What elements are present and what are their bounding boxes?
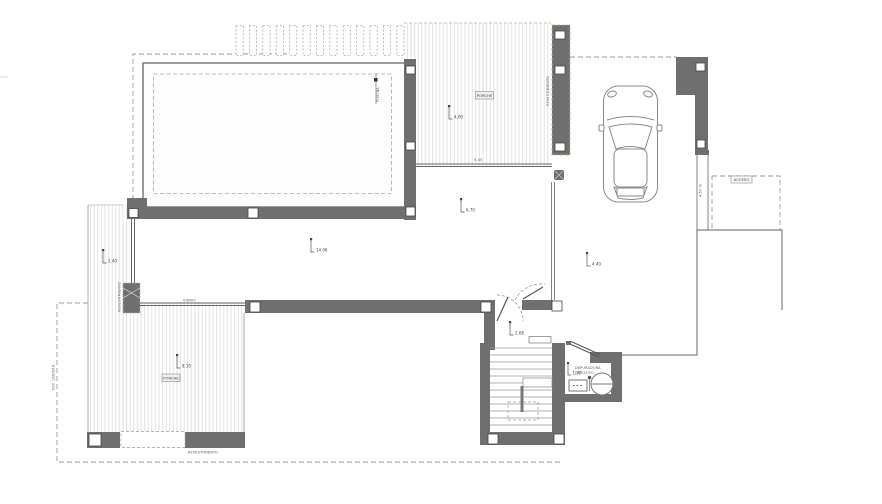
- utility-room: [569, 373, 613, 395]
- floor-plan-canvas: PORCHE PORCHE ACCESO 4.00 6.70 14.06 1.4…: [0, 0, 882, 504]
- floor-plan-drawing: PORCHE PORCHE ACCESO 4.00 6.70 14.06 1.4…: [0, 0, 882, 504]
- stairs: [490, 337, 552, 426]
- wall-utility-bottom: [563, 394, 622, 402]
- marker-porch-top: 4.00: [454, 115, 463, 120]
- wall-stairs-left: [480, 343, 490, 445]
- pergola-slats: [236, 26, 404, 56]
- label-side-dim: 4.50 m: [699, 183, 703, 197]
- label-access: ACCESO: [734, 177, 750, 182]
- marker-porch-bottom: 8.10: [182, 364, 191, 369]
- label-cladding-left: REVESTIMIENTO: [118, 282, 122, 312]
- pillar-terrace-column: [123, 283, 140, 313]
- wall-main-bottom: [245, 300, 495, 313]
- marker-entry: 2.68: [515, 331, 524, 336]
- wall-stairs-right: [552, 343, 565, 433]
- label-cladding-right: REVESTIMIENTO: [546, 76, 550, 106]
- label-porch-bottom: PORCHE: [163, 375, 179, 380]
- marker-living: 14.06: [316, 248, 328, 253]
- terrace-dashed-block: [121, 432, 185, 448]
- wall-pool-bottom: [127, 207, 416, 219]
- wall-entry-top: [522, 300, 553, 310]
- stairs-top-door: [529, 337, 551, 344]
- pillar-carport: [554, 170, 564, 180]
- stairs-handrail: [521, 386, 524, 412]
- wall-utility-top: [590, 352, 622, 363]
- label-utility-1: DEPURADORA: [575, 366, 601, 370]
- wall-porch-right: [552, 25, 570, 155]
- label-porch-top: PORCHE: [477, 93, 493, 98]
- wall-plot-cap: [696, 150, 709, 155]
- label-cladding-bottom: REVESTIMIENTO: [188, 451, 218, 455]
- label-glass: VIDRIO: [183, 299, 196, 303]
- marker-carport: 4.40: [592, 262, 601, 267]
- label-pool: PISCINA: [376, 87, 380, 102]
- wall-terrace-block-right: [185, 432, 245, 448]
- swimming-pool: [143, 63, 405, 207]
- marker-terrace-edge: 6.70: [466, 208, 475, 213]
- label-utility-2: DEPOSITO: [575, 371, 594, 375]
- marker-side-terrace: 1.40: [108, 259, 117, 264]
- label-boundary: SEP. LINDERO: [52, 364, 56, 390]
- car: [599, 86, 662, 202]
- label-porch-dim: 5.45: [474, 158, 482, 162]
- wall-pool-right: [404, 59, 416, 220]
